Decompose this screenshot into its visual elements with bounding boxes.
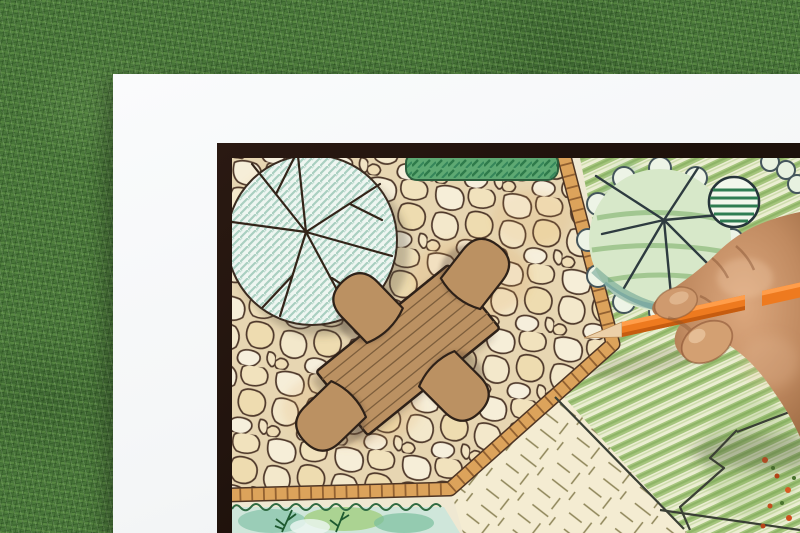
plan-frame: [217, 143, 800, 533]
garden-plan-drawing: [232, 158, 800, 533]
photo-garden-plan-scene: [0, 0, 800, 533]
shrub-blob: [709, 177, 759, 227]
planting-bed: [232, 504, 460, 533]
hedge-row: [406, 158, 558, 180]
